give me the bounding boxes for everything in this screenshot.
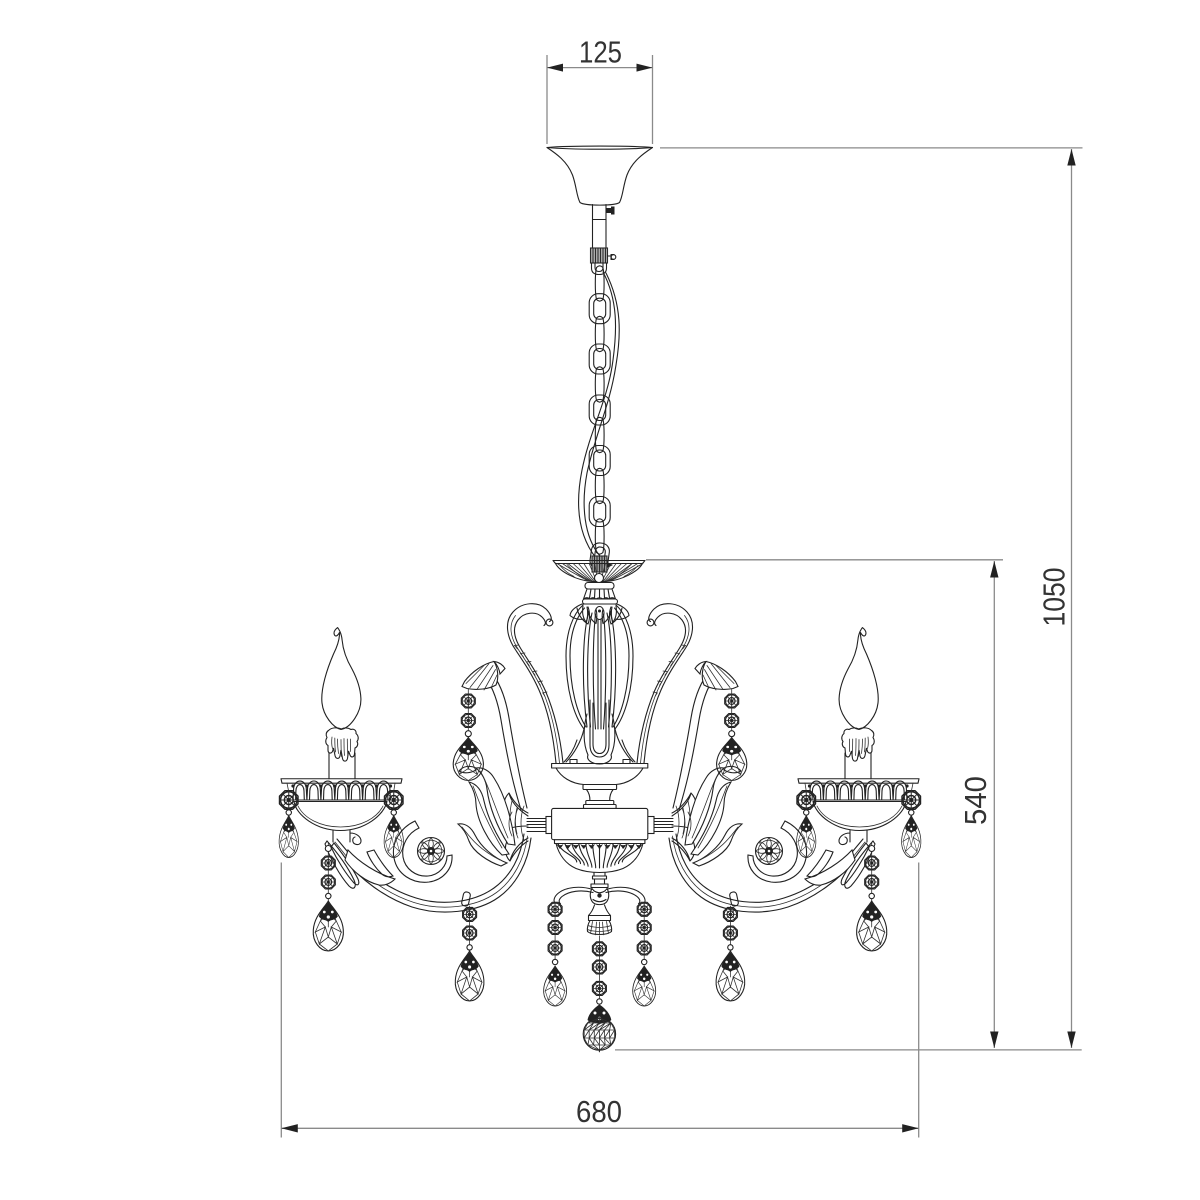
svg-text:680: 680 (576, 1094, 622, 1129)
svg-text:1050: 1050 (1037, 568, 1072, 627)
svg-text:125: 125 (579, 35, 622, 70)
svg-text:540: 540 (958, 776, 993, 825)
